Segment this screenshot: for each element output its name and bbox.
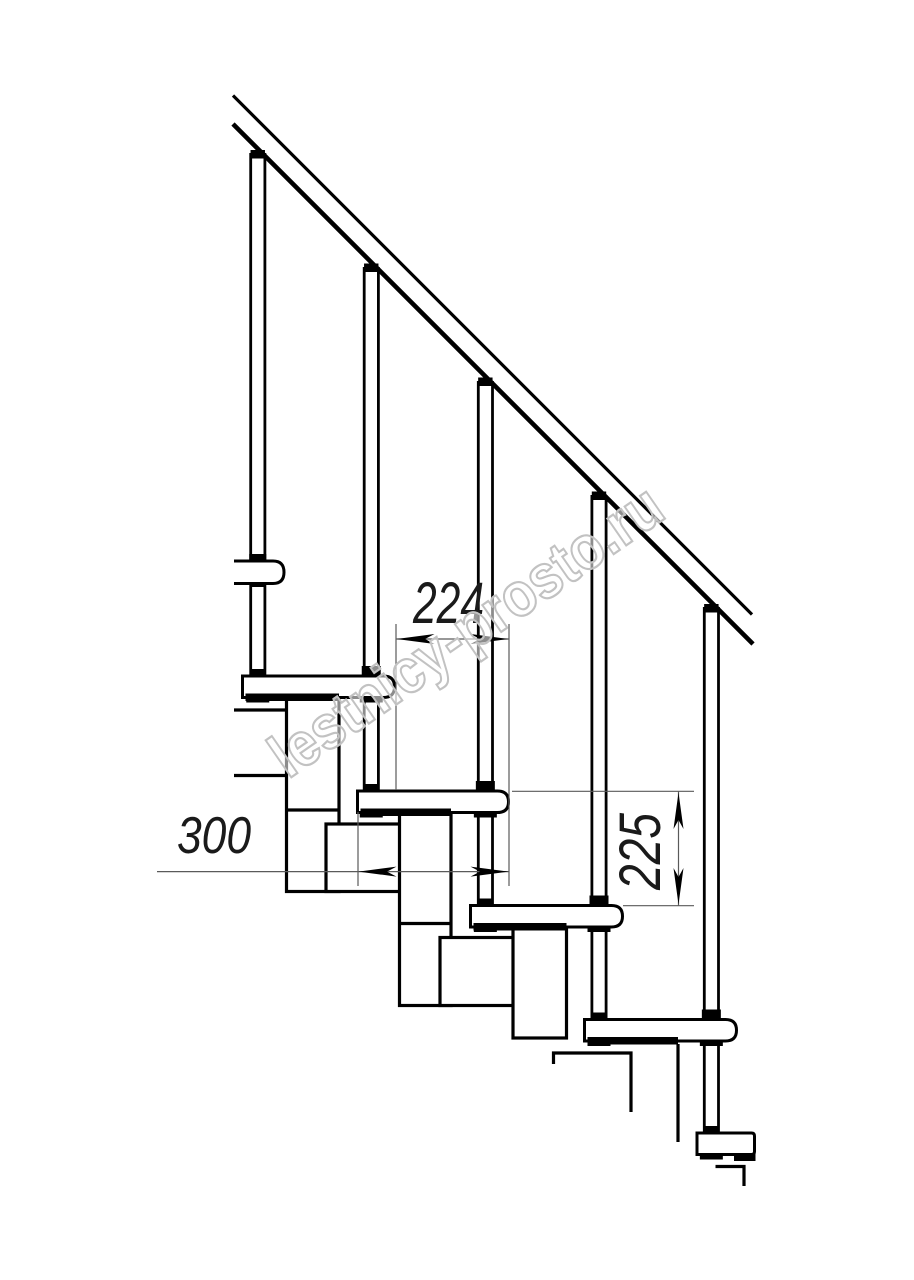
svg-text:225: 225 — [608, 812, 673, 890]
svg-text:300: 300 — [177, 807, 251, 865]
